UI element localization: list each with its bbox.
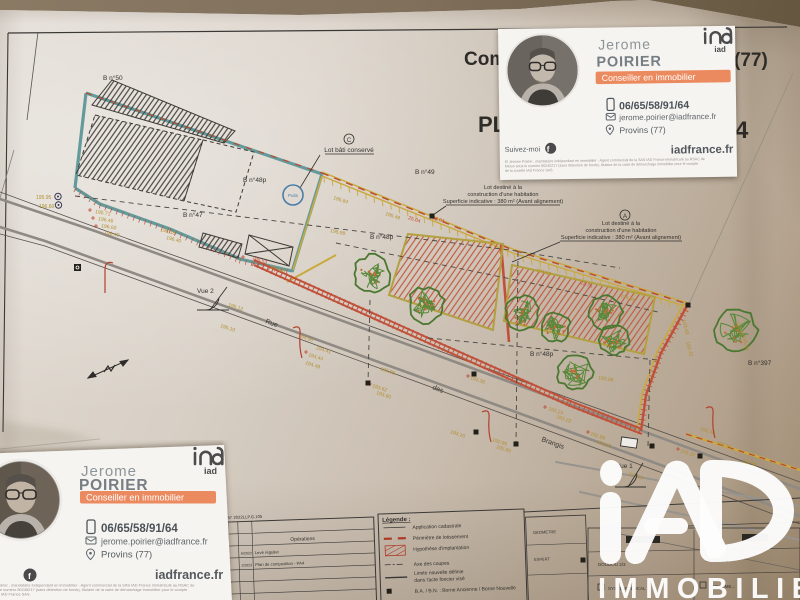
svg-text:jerome.poirier@iadfrance.fr: jerome.poirier@iadfrance.fr: [100, 537, 208, 547]
svg-text:f: f: [547, 145, 550, 154]
svg-text:Conseiller en immobilier: Conseiller en immobilier: [602, 72, 696, 83]
svg-text:iadfrance.fr: iadfrance.fr: [671, 144, 734, 157]
svg-text:Provins (77): Provins (77): [619, 125, 666, 136]
svg-text:IMMOBILIER: IMMOBILIER: [598, 573, 800, 600]
svg-text:Provins (77): Provins (77): [101, 550, 152, 561]
svg-text:Suivez-moi: Suivez-moi: [505, 144, 541, 154]
svg-text:f: f: [28, 571, 31, 581]
svg-text:iadfrance.fr: iadfrance.fr: [155, 568, 223, 582]
svg-text:iad: iad: [204, 466, 217, 476]
svg-text:de la société IAD France SAS.: de la société IAD France SAS.: [505, 168, 554, 173]
svg-text:POIRIER: POIRIER: [596, 54, 661, 71]
svg-text:Jerome: Jerome: [598, 36, 651, 53]
svg-text:de la société IAD France SAS.: de la société IAD France SAS.: [0, 592, 31, 597]
svg-text:06/65/58/91/64: 06/65/58/91/64: [101, 523, 178, 535]
svg-text:Conseiller en immobilier: Conseiller en immobilier: [86, 493, 184, 503]
svg-text:jerome.poirier@iadfrance.fr: jerome.poirier@iadfrance.fr: [618, 112, 716, 122]
svg-text:iad: iad: [714, 45, 726, 54]
svg-text:06/65/58/91/64: 06/65/58/91/64: [619, 99, 689, 112]
